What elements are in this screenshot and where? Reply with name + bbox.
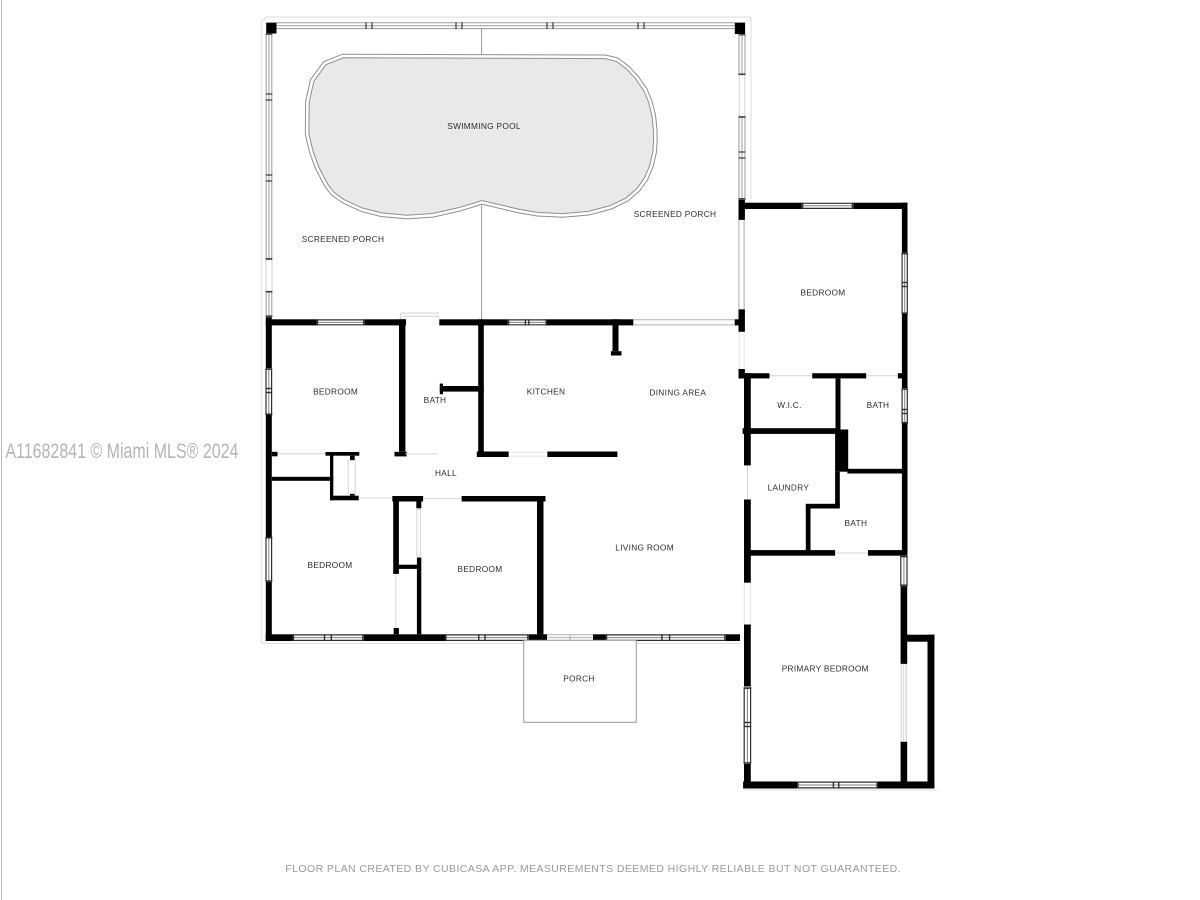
svg-text:HALL: HALL xyxy=(435,468,457,478)
svg-text:FLOOR PLAN CREATED BY CUBICASA: FLOOR PLAN CREATED BY CUBICASA APP. MEAS… xyxy=(285,863,901,875)
svg-text:LAUNDRY: LAUNDRY xyxy=(768,483,810,493)
svg-text:BEDROOM: BEDROOM xyxy=(458,564,503,574)
svg-text:BATH: BATH xyxy=(845,518,868,528)
svg-text:BEDROOM: BEDROOM xyxy=(801,288,846,298)
svg-text:BATH: BATH xyxy=(867,400,890,410)
svg-text:LIVING ROOM: LIVING ROOM xyxy=(615,542,674,552)
svg-text:SCREENED PORCH: SCREENED PORCH xyxy=(634,209,717,219)
svg-text:SCREENED PORCH: SCREENED PORCH xyxy=(302,234,385,244)
svg-text:A11682841 © Miami MLS® 2024: A11682841 © Miami MLS® 2024 xyxy=(5,440,238,463)
svg-text:KITCHEN: KITCHEN xyxy=(527,386,566,396)
svg-text:W.I.C.: W.I.C. xyxy=(777,400,801,410)
svg-text:BEDROOM: BEDROOM xyxy=(313,386,358,396)
svg-text:BATH: BATH xyxy=(424,395,447,405)
svg-text:PORCH: PORCH xyxy=(563,674,594,684)
svg-text:BEDROOM: BEDROOM xyxy=(308,560,353,570)
svg-text:SWIMMING POOL: SWIMMING POOL xyxy=(447,121,521,131)
svg-text:DINING AREA: DINING AREA xyxy=(649,388,706,398)
svg-text:PRIMARY BEDROOM: PRIMARY BEDROOM xyxy=(782,664,869,674)
